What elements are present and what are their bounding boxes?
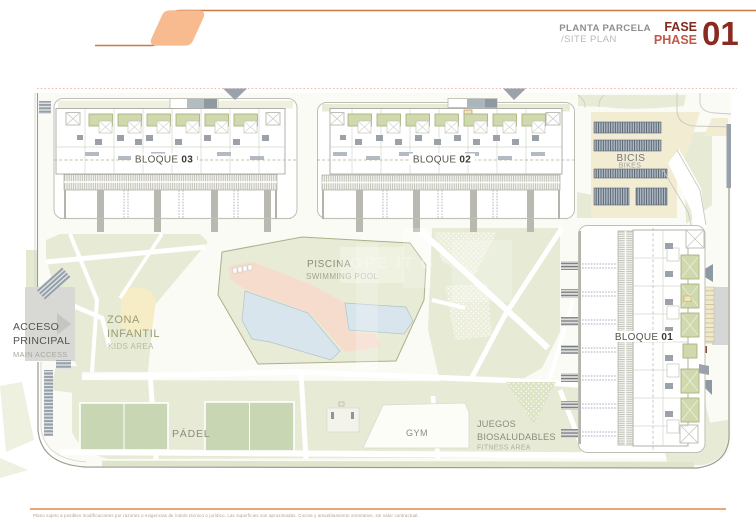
svg-text:MAIN ACCESS: MAIN ACCESS bbox=[13, 350, 68, 359]
svg-text:INFANTIL: INFANTIL bbox=[107, 328, 160, 340]
svg-text:PHASE: PHASE bbox=[654, 33, 697, 47]
svg-text:PLANTA PARCELA: PLANTA PARCELA bbox=[559, 23, 651, 34]
svg-text:BIOSALUDABLES: BIOSALUDABLES bbox=[477, 432, 556, 442]
svg-text:PRINCIPAL: PRINCIPAL bbox=[13, 335, 70, 347]
svg-text:ACCESO: ACCESO bbox=[13, 321, 59, 333]
svg-text:KIDS AREA: KIDS AREA bbox=[108, 342, 154, 351]
svg-text:PÁDEL: PÁDEL bbox=[172, 427, 210, 440]
svg-text:JUEGOS: JUEGOS bbox=[477, 419, 516, 429]
svg-text:FASE: FASE bbox=[664, 20, 697, 34]
svg-text:OPE IT G: OPE IT G bbox=[350, 255, 435, 272]
svg-text:01: 01 bbox=[702, 15, 739, 52]
svg-text:Plano sujeto a posibles modifi: Plano sujeto a posibles modificaciones p… bbox=[33, 513, 419, 518]
svg-text:FITNESS AREA: FITNESS AREA bbox=[477, 445, 531, 452]
svg-text:BIKES: BIKES bbox=[619, 163, 642, 170]
svg-text:/SITE PLAN: /SITE PLAN bbox=[561, 34, 617, 45]
svg-text:BLOQUE 03: BLOQUE 03 bbox=[135, 155, 193, 166]
svg-text:ZONA: ZONA bbox=[107, 314, 140, 326]
svg-text:BLOQUE 01: BLOQUE 01 bbox=[615, 332, 673, 343]
svg-text:BLOQUE 02: BLOQUE 02 bbox=[413, 155, 471, 166]
svg-text:GYM: GYM bbox=[406, 428, 428, 438]
